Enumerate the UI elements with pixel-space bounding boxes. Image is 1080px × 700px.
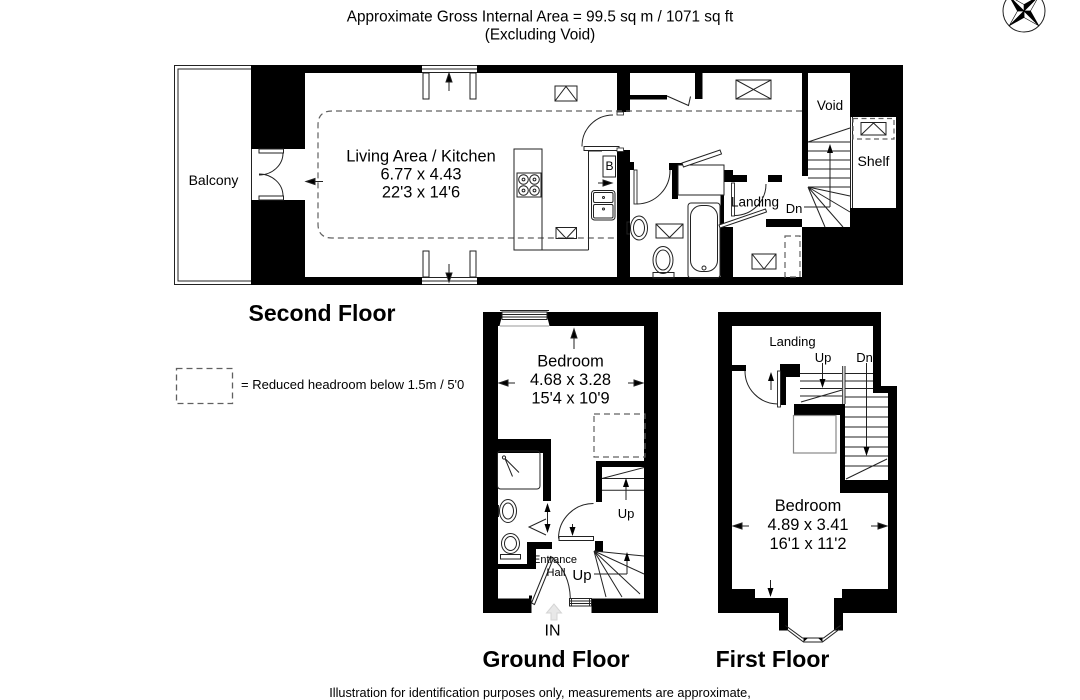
svg-text:IN: IN — [545, 623, 561, 640]
svg-text:Dn: Dn — [786, 201, 803, 216]
svg-text:Up: Up — [572, 567, 591, 584]
svg-text:Landing: Landing — [731, 195, 779, 210]
svg-text:4.89 x 3.41: 4.89 x 3.41 — [767, 516, 848, 534]
svg-text:15'4 x 10'9: 15'4 x 10'9 — [531, 390, 609, 408]
svg-text:Illustration for identificatio: Illustration for identification purposes… — [329, 686, 750, 700]
svg-text:Bedroom: Bedroom — [537, 353, 604, 371]
svg-text:Dn: Dn — [856, 350, 873, 365]
svg-text:6.77 x 4.43: 6.77 x 4.43 — [380, 166, 461, 184]
svg-text:B: B — [605, 159, 613, 173]
svg-text:= Reduced headroom below 1.5m: = Reduced headroom below 1.5m / 5'0 — [241, 377, 464, 392]
svg-text:(Excluding Void): (Excluding Void) — [485, 27, 596, 44]
svg-text:Approximate Gross Internal Are: Approximate Gross Internal Area = 99.5 s… — [347, 9, 734, 26]
svg-text:Second Floor: Second Floor — [249, 300, 396, 326]
svg-text:16'1 x 11'2: 16'1 x 11'2 — [769, 535, 846, 553]
svg-text:Void: Void — [817, 98, 843, 113]
svg-text:Shelf: Shelf — [858, 153, 890, 169]
svg-text:Hall: Hall — [547, 567, 566, 579]
svg-text:First Floor: First Floor — [716, 646, 830, 672]
svg-text:Up: Up — [618, 506, 635, 521]
svg-text:Living Area / Kitchen: Living Area / Kitchen — [346, 148, 495, 166]
svg-text:Ground Floor: Ground Floor — [483, 646, 630, 672]
svg-text:Entrance: Entrance — [533, 554, 577, 566]
svg-text:4.68 x 3.28: 4.68 x 3.28 — [530, 371, 611, 389]
svg-text:Up: Up — [815, 350, 832, 365]
svg-text:Balcony: Balcony — [189, 172, 239, 188]
svg-text:Bedroom: Bedroom — [775, 497, 842, 515]
svg-text:Landing: Landing — [769, 334, 815, 349]
svg-text:22'3 x 14'6: 22'3 x 14'6 — [382, 184, 460, 202]
